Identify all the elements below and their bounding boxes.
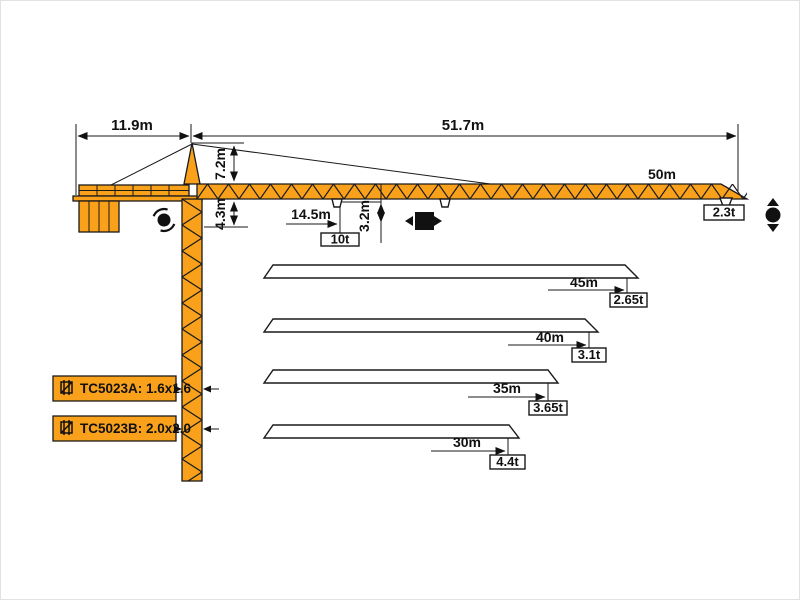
tower-head-height-label: 7.2m [212,148,228,180]
main-jib: 50m 2.3t [197,166,747,220]
jib-variant-45m: 45m 2.65t [264,265,647,307]
variant-load-label: 3.65t [533,400,563,415]
jib-variant-35m: 35m 3.65t [264,370,567,415]
main-jib-lattice [197,184,747,199]
jib-underside-height-label: 4.3m [212,198,228,230]
variant-length-label: 45m [570,274,598,290]
crane-dimension-diagram: 11.9m 51.7m 7.2m 4.3m [0,0,800,600]
counter-jib-tie [109,144,192,186]
counter-jib-length-label: 11.9m [111,117,153,134]
tip-load-label: 2.3t [713,205,736,220]
jib-variant-30m: 30m 4.4t [264,425,525,469]
slewing-icon [149,205,180,236]
tie-ropes [109,144,498,186]
trolley-hanger [332,199,342,207]
max-load-label: 10t [331,232,350,247]
leader-arrow [203,386,211,393]
leader-arrow [203,426,211,433]
trolley-radius-label: 14.5m [291,206,331,222]
trolley-travel-icon [405,212,442,230]
mast-lattice [182,199,202,481]
hook-clearance-label: 3.2m [356,200,372,232]
variant-length-label: 30m [453,434,481,450]
jib-working-length-label: 51.7m [442,117,485,134]
variant-length-label: 35m [493,380,521,396]
variant-length-label: 40m [536,329,564,345]
variant-load-label: 3.1t [578,347,601,362]
main-jib-length-label: 50m [648,166,676,182]
top-dimensions: 11.9m 51.7m [76,117,738,195]
diagram-canvas: 11.9m 51.7m 7.2m 4.3m [1,1,800,601]
jib-tie [192,144,498,185]
tower-head [184,143,200,184]
hoist-icon [766,198,781,232]
motion-symbols [149,198,781,235]
jib-variant-40m: 40m 3.1t [264,319,606,362]
trolley-hanger [440,199,450,207]
variant-load-label: 2.65t [614,292,644,307]
variant-load-label: 4.4t [496,454,519,469]
